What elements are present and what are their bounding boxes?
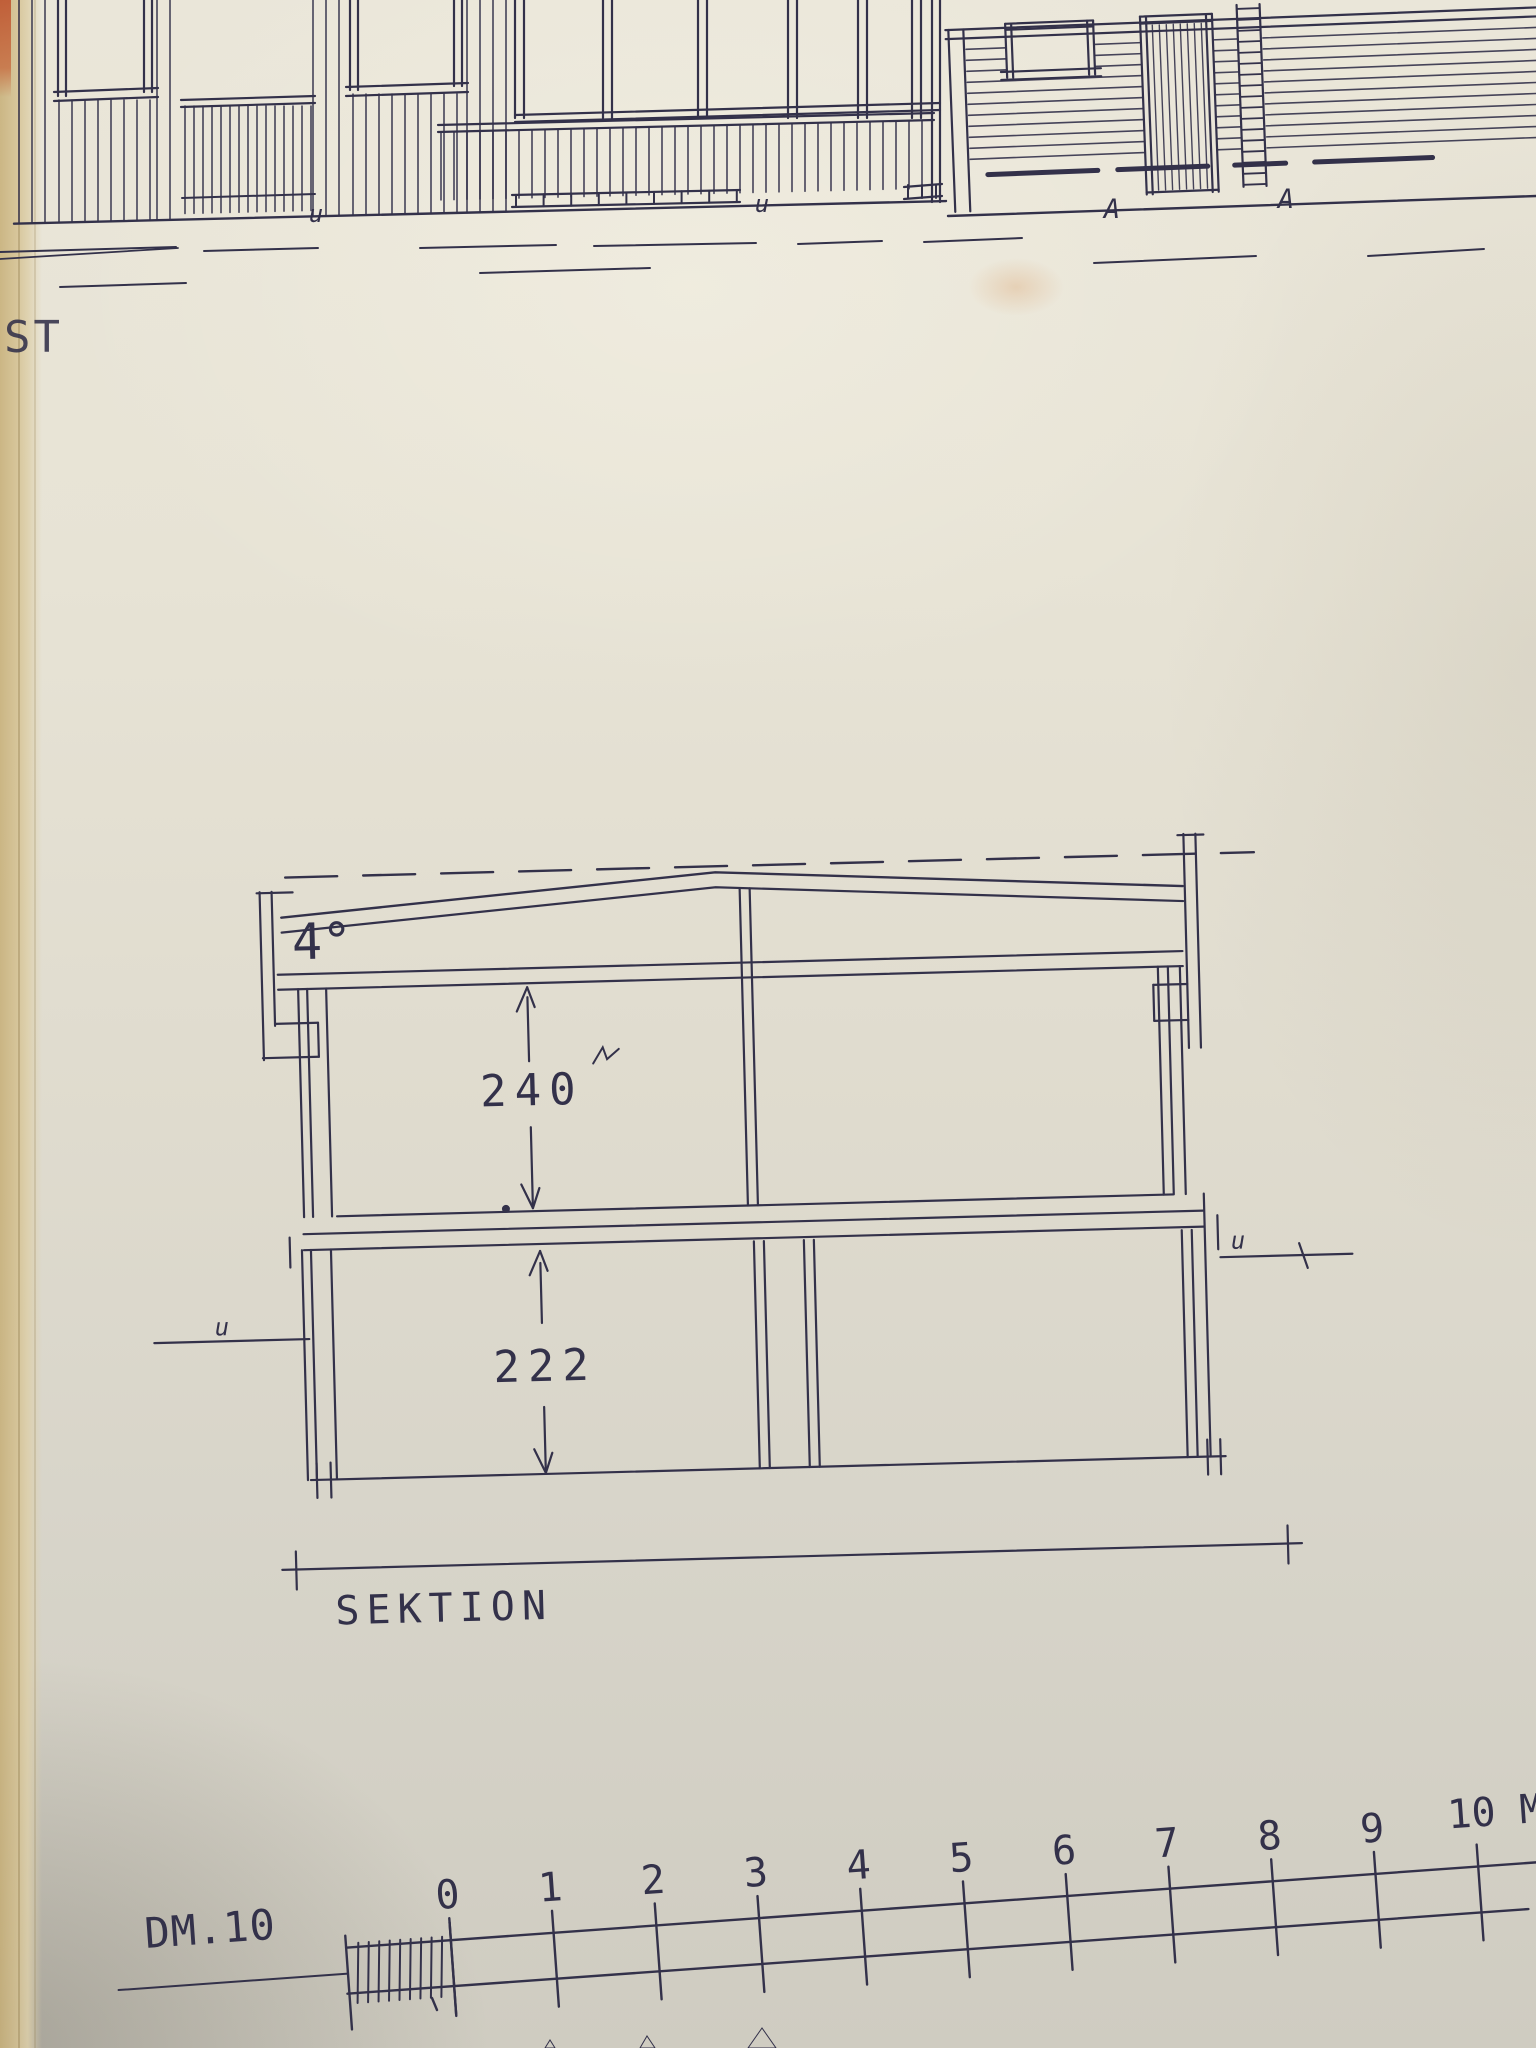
match-mark-u: u <box>309 200 323 228</box>
ink-line <box>1235 163 1286 165</box>
ink-line <box>278 966 1183 990</box>
scale-tick-label: 8 <box>1256 1813 1283 1861</box>
ink-line <box>1315 158 1433 163</box>
ink-line <box>346 92 468 96</box>
ink-line <box>1263 38 1536 49</box>
ink-line <box>1166 25 1172 190</box>
ink-line <box>1243 173 1266 174</box>
ink-line <box>296 1551 297 1589</box>
ink-line <box>331 1249 337 1479</box>
ink-polyline <box>280 860 1183 918</box>
elevation-right-building <box>945 0 1536 212</box>
ink-line <box>1215 94 1240 95</box>
ink-line <box>1238 41 1261 42</box>
ink-line <box>302 1250 308 1480</box>
ink-line <box>1215 83 1240 84</box>
ink-line <box>1237 19 1260 20</box>
ink-line <box>1237 8 1260 9</box>
ink-line <box>275 1023 318 1024</box>
ink-line <box>924 238 1022 242</box>
ink-line <box>311 1456 1226 1480</box>
cut-text-fragment <box>545 2028 776 2048</box>
ink-line <box>1265 93 1536 104</box>
ink-line <box>317 1463 318 1498</box>
scale-tick-label: 6 <box>1050 1827 1077 1875</box>
drawing-canvas: u u A A ST 4° 240 222 u u SEKTION DM.10 … <box>0 0 1536 2048</box>
ink-line <box>449 1918 456 2014</box>
ink-line <box>345 1936 352 2030</box>
ink-line <box>1147 190 1219 193</box>
ink-line <box>1368 249 1484 256</box>
ink-line <box>1267 126 1536 137</box>
ink-line <box>278 951 1183 975</box>
ink-line <box>540 1263 542 1323</box>
ink-line <box>1243 184 1266 185</box>
lower-floor-height-dim: 222 <box>493 1340 598 1394</box>
ink-line <box>204 248 318 251</box>
ink-line <box>1213 50 1238 51</box>
ink-line <box>531 1127 533 1205</box>
ink-line <box>282 1543 1302 1570</box>
ink-line <box>1001 68 1101 72</box>
ink-line <box>311 1250 317 1480</box>
match-mark-u: u <box>1230 1227 1245 1255</box>
ink-line <box>969 109 1144 116</box>
ink-line <box>1264 60 1536 71</box>
ink-line <box>181 96 315 100</box>
ink-line <box>346 1861 1536 1948</box>
ink-line <box>860 1889 867 1985</box>
ink-line <box>1187 24 1193 189</box>
ink-line <box>814 1240 820 1467</box>
ink-line <box>1239 74 1262 75</box>
elevation-drawing: u u A A <box>0 0 1536 287</box>
ink-line <box>516 987 528 1011</box>
ink-line <box>1087 21 1089 75</box>
ink-line <box>963 1881 970 1977</box>
pencil-mark <box>593 1047 619 1064</box>
ink-line <box>948 30 955 212</box>
ink-line <box>346 83 468 87</box>
ink-line <box>1118 166 1208 169</box>
elevation-left-building <box>0 0 1536 287</box>
ink-line <box>1177 834 1203 835</box>
ink-line <box>948 196 1536 216</box>
ink-line <box>60 283 186 287</box>
roof-angle-label: 4° <box>291 912 353 972</box>
ink-line <box>963 29 970 211</box>
ink-line <box>970 153 1145 160</box>
ink-line <box>480 268 650 273</box>
ink-line <box>1140 14 1212 17</box>
ink-line <box>1011 24 1013 78</box>
ink-line <box>988 170 1098 174</box>
ink-line <box>337 1194 1173 1216</box>
ink-line <box>757 1896 764 1992</box>
ink-line <box>1267 137 1536 148</box>
ink-line <box>655 1903 662 1999</box>
ink-line <box>740 889 748 1206</box>
ink-line <box>1237 5 1244 187</box>
scale-tick-label: 4 <box>845 1842 872 1890</box>
ink-line <box>1374 1852 1381 1948</box>
ink-line <box>1194 24 1200 189</box>
ink-line <box>1094 54 1141 56</box>
ink-line <box>420 245 556 248</box>
ink-line <box>1271 1859 1278 1955</box>
ink-line <box>1242 140 1265 141</box>
ink-line <box>527 997 529 1061</box>
ink-line <box>594 243 756 246</box>
ink-line <box>257 892 293 893</box>
ink-line <box>1214 72 1239 73</box>
scale-tick-label: 2 <box>639 1857 666 1905</box>
ink-line <box>754 1241 760 1468</box>
ink-line <box>750 888 758 1205</box>
ink-line <box>326 989 332 1217</box>
ink-line <box>1173 24 1179 189</box>
ink-line <box>804 1240 810 1467</box>
ink-line <box>1240 85 1263 86</box>
ink-line <box>1183 834 1189 1048</box>
ink-line <box>1217 1215 1218 1249</box>
scale-label: DM.10 <box>143 1900 278 1958</box>
ink-line <box>1180 966 1186 1194</box>
ink-line <box>1158 967 1164 1195</box>
ink-line <box>1094 256 1256 263</box>
ink-line <box>1263 27 1536 38</box>
ink-line <box>1216 116 1241 117</box>
scale-bar: DM.10 012345678910 M <box>111 1785 1536 2046</box>
ink-line <box>1287 1526 1288 1564</box>
match-mark-u: u <box>214 1313 229 1341</box>
ground-mark-a: A <box>1102 194 1120 225</box>
ink-line <box>1153 985 1154 1021</box>
ink-line <box>1094 43 1141 45</box>
ink-line <box>1264 49 1536 60</box>
ink-line <box>1260 4 1267 186</box>
ground-mark-a: A <box>1276 184 1294 215</box>
ink-line <box>347 1909 1528 1994</box>
ink-line <box>1168 966 1174 1194</box>
ink-line <box>945 7 1536 30</box>
ink-line <box>1239 63 1262 64</box>
ink-line <box>1238 30 1261 31</box>
ink-line <box>438 113 934 125</box>
ink-line <box>1266 104 1536 115</box>
ink-line <box>1241 118 1264 119</box>
match-mark-u: u <box>755 190 769 218</box>
scale-tick-label: 5 <box>948 1835 975 1883</box>
ink-line <box>318 1023 319 1057</box>
ink-line <box>529 1251 541 1275</box>
ink-line <box>331 1463 332 1498</box>
ink-line <box>1477 1845 1484 1941</box>
ink-line <box>969 131 1144 138</box>
ink-line <box>260 892 264 1060</box>
left-edge-text: ST <box>4 312 63 363</box>
ink-line <box>1192 1230 1198 1457</box>
ink-line <box>1265 71 1536 82</box>
ink-line <box>432 1998 437 2010</box>
ink-line <box>1180 24 1186 189</box>
ink-line <box>1265 82 1536 93</box>
ink-line <box>798 241 882 244</box>
ink-line <box>119 1974 348 1990</box>
ink-line <box>1214 61 1239 62</box>
ink-line <box>1159 25 1165 190</box>
ink-line <box>1005 20 1093 23</box>
ink-line <box>1207 1440 1208 1475</box>
scale-tick-label: 9 <box>1359 1805 1386 1853</box>
ink-line <box>1266 115 1536 126</box>
ink-line <box>1215 105 1240 106</box>
ink-line <box>438 120 934 132</box>
scale-tick-label: 0 <box>434 1871 461 1919</box>
ink-line <box>1095 65 1142 67</box>
ink-line <box>1238 52 1261 53</box>
scale-bar-linework <box>115 1839 1536 2046</box>
ink-line <box>544 1407 546 1471</box>
ink-line <box>515 110 940 122</box>
ink-line <box>534 1449 546 1473</box>
ink-line <box>969 120 1144 127</box>
ink-line <box>1152 25 1158 190</box>
ink-line <box>970 142 1145 149</box>
ink-line <box>1066 1874 1073 1970</box>
blueprint-page: u u A A ST 4° 240 222 u u SEKTION DM.10 … <box>0 0 1536 2048</box>
scale-tick-label: 1 <box>537 1864 564 1912</box>
section-drawing: 4° 240 222 u u SEKTION <box>142 830 1362 1639</box>
ink-line <box>1213 39 1238 40</box>
scale-tick-label: 7 <box>1153 1820 1180 1868</box>
ink-line <box>290 1238 291 1268</box>
bottom-edge-cut-text <box>432 1998 776 2048</box>
upper-floor-height-dim: 240 <box>479 1064 584 1118</box>
ink-line <box>1216 127 1241 128</box>
ink-line <box>1217 138 1242 139</box>
ink-line <box>1093 20 1095 74</box>
ink-line <box>1182 1230 1188 1457</box>
ink-line <box>1241 107 1264 108</box>
ink-line <box>968 98 1143 105</box>
ink-line <box>764 1241 770 1468</box>
scale-tick-labels: 012345678910 M <box>433 1786 1536 1919</box>
ink-line <box>966 59 1006 61</box>
ink-line <box>1195 834 1201 1048</box>
ink-line <box>968 87 1143 94</box>
ink-line <box>552 1911 559 2007</box>
ink-line <box>272 892 276 1026</box>
ink-line <box>515 103 940 115</box>
ink-line <box>154 1339 309 1343</box>
ink-line <box>1240 96 1263 97</box>
ink-line <box>1204 1194 1211 1457</box>
scale-end-label: 10 M <box>1446 1786 1536 1839</box>
ink-line <box>1168 1867 1175 1963</box>
ink-line <box>1217 149 1242 150</box>
ink-line <box>1241 129 1264 130</box>
ink-line <box>263 1057 319 1058</box>
ink-line <box>521 1184 533 1208</box>
ink-line <box>1242 151 1265 152</box>
ink-line <box>966 48 1006 50</box>
ink-line <box>54 97 158 101</box>
ink-line <box>1220 1439 1221 1474</box>
ink-line <box>54 88 158 92</box>
section-title: SEKTION <box>335 1583 554 1635</box>
scale-tick-label: 3 <box>742 1849 769 1897</box>
